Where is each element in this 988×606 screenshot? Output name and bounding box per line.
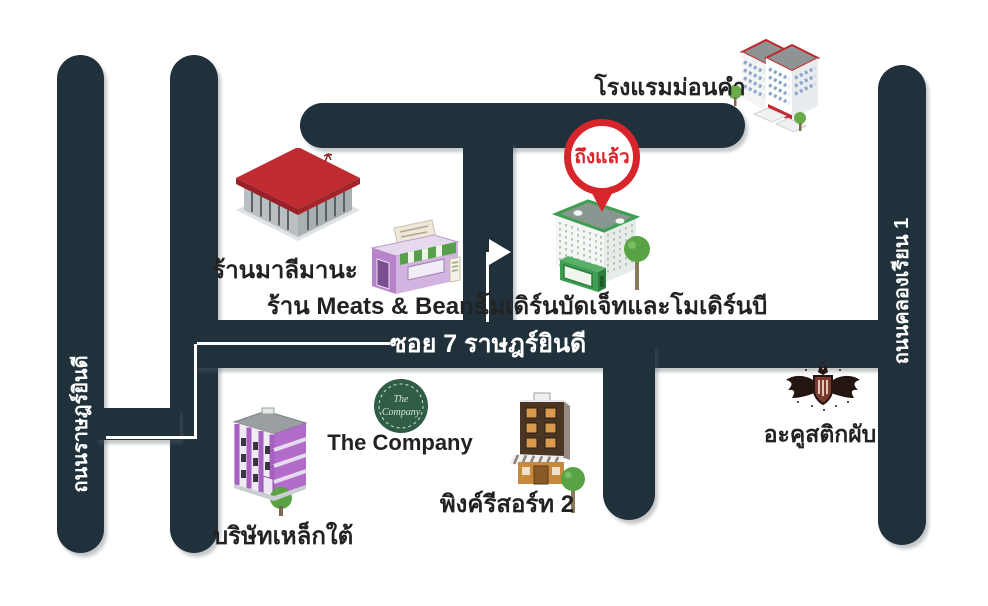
route-arrow-icon bbox=[489, 239, 511, 265]
acoustic-pub-label: อะคูสติกผับ bbox=[764, 417, 877, 453]
road-lower-vertical bbox=[603, 345, 655, 520]
tree-icon bbox=[622, 234, 652, 294]
road-label-right: ถนนคลองเรียน 1 bbox=[885, 218, 917, 365]
the-company-logo-icon: The Company bbox=[372, 377, 430, 435]
road-top-horizontal bbox=[300, 103, 745, 148]
route-line-bottom bbox=[106, 436, 197, 439]
hotel-label: โรงแรมม่อนคำ bbox=[594, 70, 745, 106]
pink-resort-label: พิงค์รีสอร์ท 2 bbox=[440, 484, 574, 523]
logo-text-company: Company bbox=[382, 407, 421, 418]
destination-pin-label: ถึงแล้ว bbox=[574, 142, 629, 172]
meats-beans-building-icon bbox=[366, 218, 464, 294]
road-second-vertical bbox=[170, 55, 218, 553]
malimana-label: ร้านมาลีมานะ bbox=[212, 250, 357, 289]
meats-beans-label: ร้าน Meats & Beans bbox=[267, 286, 487, 325]
route-line-up bbox=[194, 344, 197, 439]
road-label-soi7: ซอย 7 ราษฎร์ยินดี bbox=[390, 324, 587, 364]
destination-label: โมเดิร์นบัดเจ็ทและโมเดิร์นบี bbox=[477, 286, 768, 325]
the-company-label: The Company bbox=[327, 430, 472, 456]
malimana-building-icon bbox=[233, 148, 363, 244]
location-map: ถนนราษฎร์ยินดี ซอย 7 ราษฎร์ยินดี ถนนคลอง… bbox=[0, 0, 988, 606]
destination-pin: ถึงแล้ว bbox=[564, 119, 640, 195]
steel-company-label: บริษัทเหล็กใต้ bbox=[213, 516, 353, 555]
soi7-leader-line bbox=[197, 342, 390, 345]
road-label-left: ถนนราษฎร์ยินดี bbox=[64, 355, 96, 492]
logo-text-the: The bbox=[394, 394, 410, 405]
steel-company-building-icon bbox=[226, 406, 314, 520]
acoustic-pub-emblem-icon bbox=[784, 362, 864, 422]
